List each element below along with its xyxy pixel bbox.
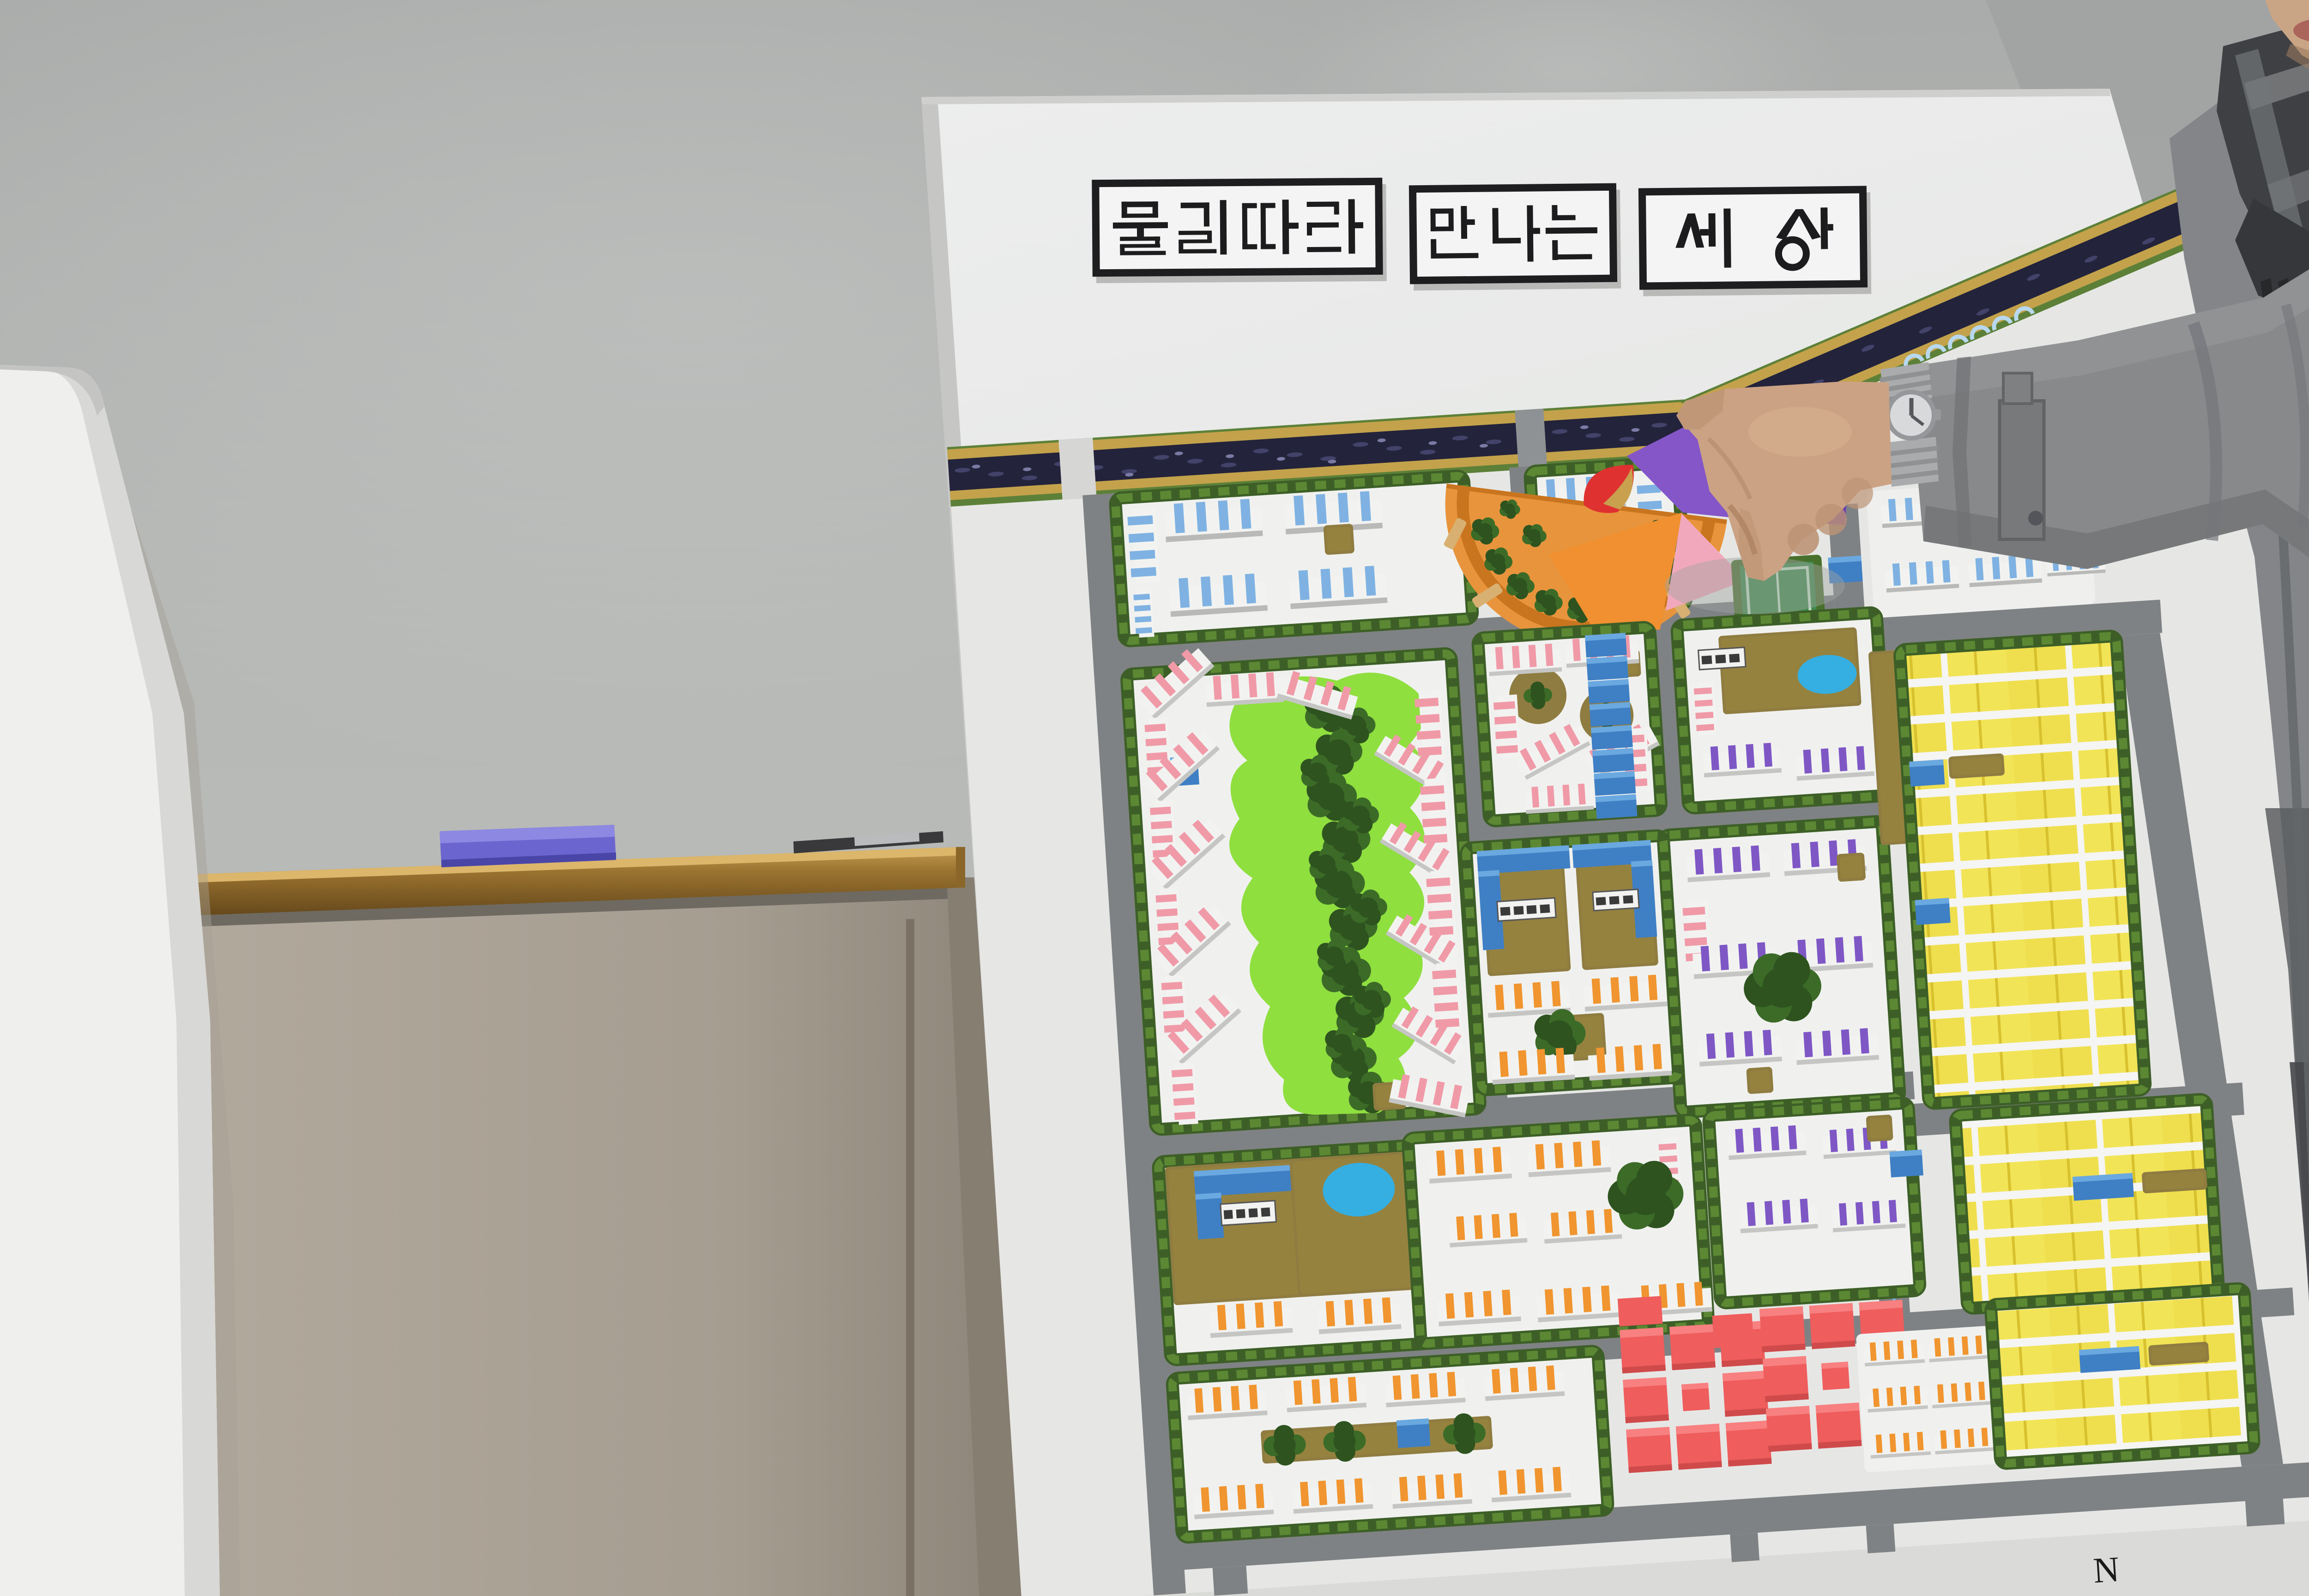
- svg-text:N: N: [2092, 1549, 2121, 1590]
